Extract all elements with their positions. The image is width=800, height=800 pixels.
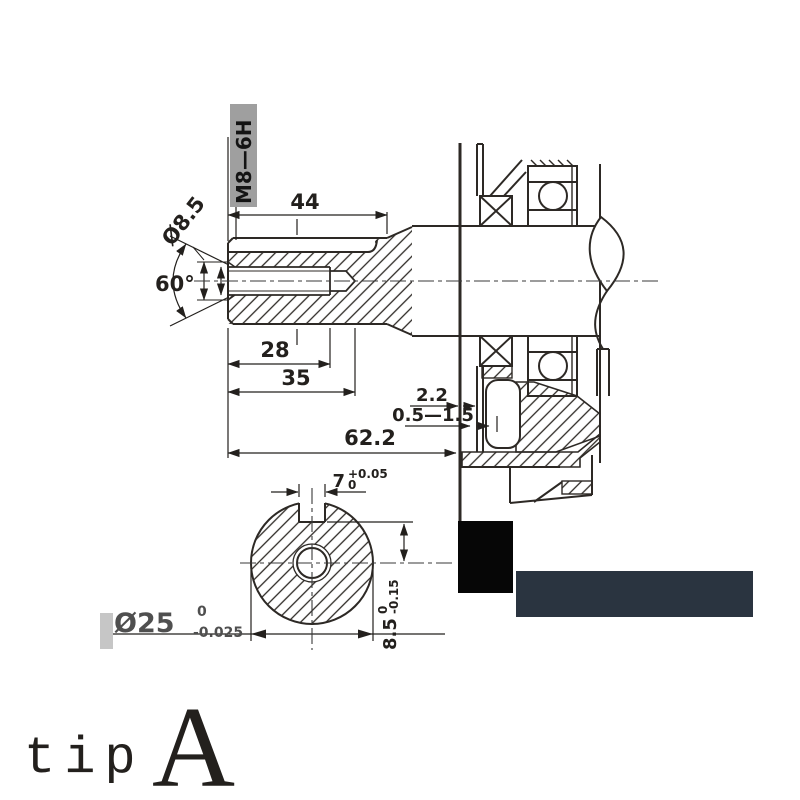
dim-62-2: 62.2 [344, 426, 396, 450]
brand-navy-box [516, 571, 753, 617]
thread-callout: M8—6H [232, 120, 256, 204]
shaft-dia-tol-lower: -0.025 [193, 625, 243, 641]
dim-60deg: 60° [155, 272, 195, 296]
watermark-tip-a: tip A [24, 684, 235, 800]
shaft-dia-value: Ø25 [114, 608, 175, 639]
dim-35: 35 [281, 366, 310, 390]
redaction-black-box [458, 521, 513, 593]
engineering-drawing: 44 28 35 62.2 2.2 0.5—1.5 60° Ø8.5 M8—6H [0, 0, 800, 800]
watermark-letter-a: A [152, 684, 235, 800]
dim-2-2: 2.2 [416, 385, 448, 406]
oil-seal-bottom [480, 336, 512, 366]
seal-lip-hatch [482, 366, 512, 378]
dim-28: 28 [260, 338, 289, 362]
dim-seal-range: 0.5—1.5 [392, 405, 474, 426]
shaft-dia-tol-upper: 0 [197, 604, 207, 620]
technical-drawing-page: 44 28 35 62.2 2.2 0.5—1.5 60° Ø8.5 M8—6H [0, 0, 800, 800]
dim-44: 44 [290, 190, 319, 214]
dim-thread-dia: Ø8.5 [157, 192, 210, 250]
gray-watermark-bar [100, 613, 113, 649]
ball-bearing-top [528, 160, 577, 226]
key-width-tol-lower: 0 [348, 478, 356, 492]
crank-web-lobe [590, 217, 624, 396]
oil-seal-top [480, 196, 512, 226]
seal-cavity [486, 380, 520, 448]
key-width-value: 7 [332, 471, 345, 492]
key-depth-value: 8.5 [380, 618, 401, 650]
key-depth-tol-lower: -0.15 [387, 579, 401, 614]
side-section-view [226, 143, 624, 521]
watermark-tip-text: tip [24, 729, 145, 788]
